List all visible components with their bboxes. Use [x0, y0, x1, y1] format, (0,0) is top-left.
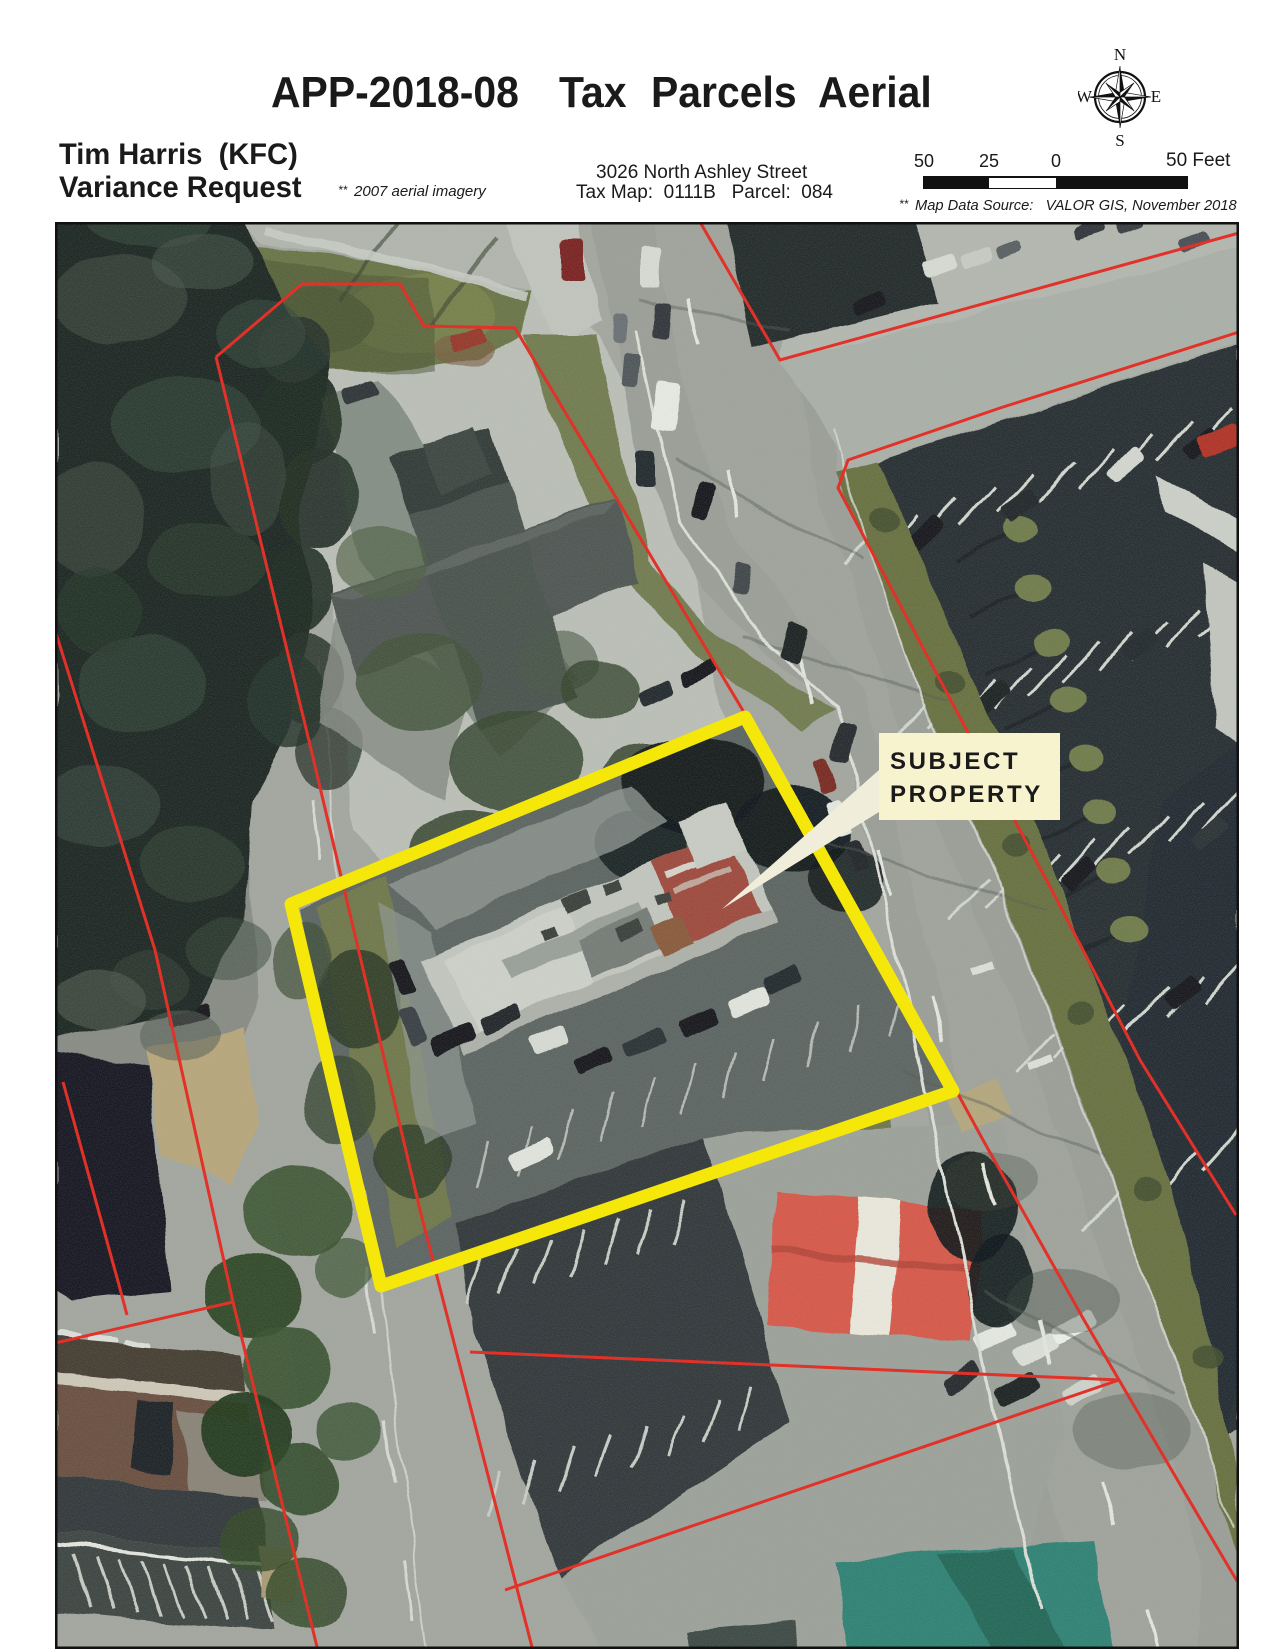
- svg-text:W: W: [1078, 87, 1093, 106]
- svg-text:E: E: [1151, 87, 1161, 106]
- svg-text:SUBJECT: SUBJECT: [890, 748, 1020, 775]
- svg-text:N: N: [1114, 45, 1126, 64]
- svg-text:PROPERTY: PROPERTY: [890, 781, 1043, 808]
- svg-text:S: S: [1115, 131, 1124, 148]
